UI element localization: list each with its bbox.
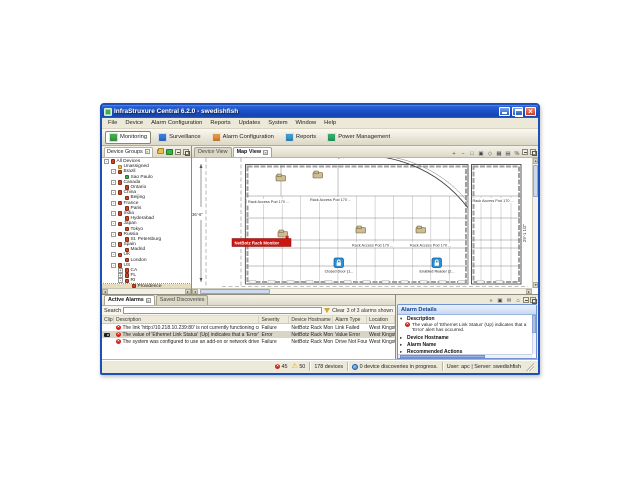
alarm-row[interactable]: The system was configured to use an add-… (102, 338, 395, 345)
panel-minimize-icon[interactable] (523, 297, 529, 303)
door-lock-icon[interactable] (334, 258, 344, 268)
tree-item-label: UK (124, 252, 131, 257)
tree-expander-spacer (118, 258, 123, 263)
alarm-details-title: Alarm Details (401, 307, 437, 313)
tree-expander-icon[interactable]: - (111, 263, 116, 268)
main-row: Device Groups -All DevicesUnassigned-Bra… (102, 146, 538, 294)
section-arrow-icon[interactable]: ▸ (400, 342, 405, 348)
column-header-location[interactable]: Location (367, 316, 395, 323)
power-management-icon (327, 133, 336, 142)
surveillance-icon (158, 133, 167, 142)
alarm-table: The link 'http://10.218.10.239:80' is no… (102, 324, 395, 345)
alarm-row[interactable]: The link 'http://10.218.10.239:80' is no… (102, 324, 395, 331)
group-red-icon (125, 206, 130, 211)
map-panel: Device View Map View +−□▣◇▦▤% (192, 146, 538, 294)
tab-label: Device View (198, 149, 228, 155)
tree-expander-spacer (118, 237, 123, 242)
tree-expander-spacer (118, 227, 123, 232)
zoom-fit-icon[interactable]: □ (468, 149, 476, 157)
power-management-button[interactable]: Power Management (323, 131, 394, 144)
tree-expander-icon[interactable]: - (111, 232, 116, 237)
details-horizontal-scrollbar[interactable] (398, 354, 532, 358)
group-red-icon (118, 170, 123, 175)
dimension-arrow (200, 164, 203, 168)
tree-expander-icon[interactable]: - (111, 211, 116, 216)
door-label: Closed Door (1... (325, 270, 354, 274)
column-header-device-hostname[interactable]: Device Hostname (289, 316, 333, 323)
tab-label: Map View (237, 149, 261, 155)
menu-help[interactable]: Help (320, 120, 340, 126)
tree-expander-icon[interactable]: - (111, 201, 116, 206)
reader-lock-icon[interactable] (432, 258, 442, 268)
alarms-tab-bar: Active Alarms Saved Discoveries (102, 295, 395, 306)
group-red-icon (118, 201, 123, 206)
section-label: Alarm Name (407, 342, 436, 348)
column-header-severity[interactable]: Severity (259, 316, 289, 323)
bottom-row: Active Alarms Saved Discoveries Search C… (102, 294, 538, 359)
camera-clip-icon[interactable] (104, 333, 110, 337)
tree-item-label: Madrid (131, 247, 146, 252)
grid-icon[interactable]: ▦ (495, 149, 503, 157)
layers-icon[interactable]: ▤ (504, 149, 512, 157)
group-red-icon (118, 232, 123, 237)
alarm-configuration-button[interactable]: Alarm Configuration (208, 131, 278, 144)
alarm-search-row: Search Clear 3 of 3 alarms shown (102, 306, 395, 316)
alarm-severity: Failure (259, 324, 289, 331)
tree-expander-icon[interactable]: - (111, 169, 116, 174)
pan-icon[interactable]: ◇ (486, 149, 494, 157)
alarm-hostname: NetBotz Rack Monitor 550 (289, 331, 333, 338)
tree-expander-spacer (118, 206, 123, 211)
menu-reports[interactable]: Reports (206, 120, 234, 126)
panel-maximize-icon[interactable] (530, 297, 536, 303)
zoom-out-icon[interactable]: − (459, 149, 467, 157)
alarm-type: Value Error (333, 331, 367, 338)
group-red-icon (118, 190, 123, 195)
error-icon (116, 325, 121, 330)
active-alarms-panel: Active Alarms Saved Discoveries Search C… (102, 295, 396, 359)
alarm-description: The link 'http://10.218.10.239:80' is no… (122, 325, 259, 331)
rack-label: Rack Access Pod 170 ... (248, 200, 289, 204)
tab-close-icon[interactable] (145, 149, 150, 154)
rack-label: Rack Access Pod 170 ... (410, 244, 451, 248)
device-groups-tab[interactable]: Device Groups (104, 147, 153, 157)
tree-expander-spacer (118, 185, 123, 190)
tree-expander-icon[interactable]: - (111, 190, 116, 195)
clear-link[interactable]: Clear (332, 308, 344, 314)
menu-device[interactable]: Device (121, 120, 147, 126)
scroll-right-icon[interactable]: ► (526, 289, 532, 294)
alarm-description: The system was configured to use an add-… (122, 339, 259, 345)
dimension-label-left: 36'-6" (192, 212, 203, 217)
double-chevron-icon[interactable]: » (487, 296, 495, 304)
panel-maximize-icon[interactable] (530, 149, 536, 155)
close-icon[interactable] (525, 107, 536, 116)
details-section-device-hostname[interactable]: ▸Device Hostname (398, 334, 531, 341)
tab-active-alarms[interactable]: Active Alarms (104, 295, 155, 305)
alarm-type: Link Failed (333, 324, 367, 331)
tree-expander-icon[interactable]: - (111, 252, 116, 257)
group-red-icon (125, 227, 130, 232)
title-bar[interactable]: InfraStruxure Central 6.2.0 - swedishfis… (102, 105, 538, 118)
tab-saved-discoveries[interactable]: Saved Discoveries (156, 295, 209, 305)
group-red-icon (125, 237, 130, 242)
warning-alarms-status[interactable]: ⚠ 50 (292, 363, 306, 370)
discovery-status: 0 device discoveries in progress. (352, 364, 438, 370)
panel-maximize-icon[interactable] (183, 149, 189, 155)
scroll-thumb[interactable] (532, 315, 536, 333)
app-toolbar: MonitoringSurveillanceAlarm Configuratio… (102, 129, 538, 146)
app-icon (104, 108, 112, 116)
tree-expander-icon[interactable]: - (118, 278, 123, 283)
section-arrow-icon[interactable]: ▸ (400, 335, 405, 341)
alarm-details-panel: Alarm Details ▾DescriptionThe value of '… (397, 304, 537, 359)
alarm-location: West Kingston (367, 324, 395, 331)
search-input[interactable] (123, 307, 322, 314)
group-red-icon (125, 273, 130, 278)
toolbar-button-label: Surveillance (169, 134, 201, 140)
discovery-icon (352, 364, 358, 370)
critical-alarms-status[interactable]: 45 (275, 364, 288, 370)
column-header-clip[interactable]: Clip (102, 316, 114, 323)
menu-system[interactable]: System (264, 120, 291, 126)
tab-map-view[interactable]: Map View (233, 147, 272, 157)
critical-icon (275, 364, 280, 369)
app-window: InfraStruxure Central 6.2.0 - swedishfis… (100, 103, 540, 375)
status-bar: 45 ⚠ 50 178 devices 0 device discoveries… (102, 359, 538, 373)
toolbar-button-label: Power Management (338, 134, 390, 140)
scroll-thumb[interactable] (200, 289, 270, 294)
dimension-label-right: 29'-1 1/2" (522, 223, 527, 242)
group-red-icon (118, 263, 123, 268)
group-red-icon (118, 180, 123, 185)
tab-device-view[interactable]: Device View (194, 147, 232, 157)
group-red-icon (118, 211, 123, 216)
map-vertical-scrollbar[interactable]: ▲ ▼ (532, 158, 538, 288)
home-icon[interactable]: ⌂ (514, 296, 522, 304)
tree-expander-icon[interactable]: - (111, 221, 116, 226)
alarm-severity: Error (259, 331, 289, 338)
tree-expander-spacer (118, 195, 123, 200)
map-horizontal-scrollbar[interactable]: ◄ ► (192, 288, 532, 294)
details-vertical-scrollbar[interactable] (532, 315, 536, 354)
show-devices-icon[interactable] (166, 149, 173, 155)
group-green-icon (125, 175, 130, 180)
tree-expander-icon[interactable]: - (111, 180, 116, 185)
section-content: The value of 'Ethernet Link Status' (Up)… (398, 322, 531, 334)
monitoring-icon (109, 133, 118, 142)
group-red-icon (125, 268, 130, 273)
tab-label: Active Alarms (108, 297, 144, 303)
warning-count: 50 (299, 364, 305, 370)
panel-minimize-icon[interactable] (522, 149, 528, 155)
column-header-description[interactable]: Description (114, 316, 259, 323)
critical-count: 45 (282, 364, 288, 370)
add-group-icon[interactable] (157, 149, 165, 154)
group-red-icon (118, 253, 123, 258)
device-groups-header: Device Groups (102, 146, 191, 158)
map-tab-bar: Device View Map View +−□▣◇▦▤% (192, 146, 538, 158)
device-groups-tree: -All DevicesUnassigned-BrazilSao Paulo-C… (102, 158, 191, 288)
scroll-down-icon[interactable]: ▼ (533, 282, 538, 288)
menu-updates[interactable]: Updates (235, 120, 265, 126)
floor-map[interactable]: 36'-6" (192, 158, 538, 294)
tree-expander-spacer (118, 247, 123, 252)
tree-expander-icon[interactable]: - (104, 159, 109, 164)
toolbar-button-label: Reports (296, 134, 316, 140)
scroll-left-icon[interactable]: ◄ (192, 289, 198, 294)
tab-label: Saved Discoveries (160, 297, 205, 303)
section-label: Device Hostname (407, 335, 449, 341)
device-groups-title: Device Groups (107, 149, 143, 155)
discovery-text: 0 device discoveries in progress. (360, 364, 438, 370)
alarm-details-header: Alarm Details (398, 305, 536, 315)
alarm-type: Drive Not Found (333, 338, 367, 345)
alarm-location: West Kingston (367, 338, 395, 345)
tree-expander-icon[interactable]: - (111, 242, 116, 247)
details-toolbar: »▣✉⌂ (396, 295, 538, 304)
error-icon (116, 339, 121, 344)
alarm-details-area: »▣✉⌂ Alarm Details ▾DescriptionThe value… (396, 295, 538, 359)
details-section-alarm-name[interactable]: ▸Alarm Name (398, 341, 531, 348)
monitoring-button[interactable]: Monitoring (105, 131, 151, 144)
group-red-icon (118, 222, 123, 227)
menu-bar: FileDeviceAlarm ConfigurationReportsUpda… (102, 118, 538, 129)
device-groups-panel: Device Groups -All DevicesUnassigned-Bra… (102, 146, 192, 294)
menu-file[interactable]: File (104, 120, 121, 126)
group-red-icon (111, 159, 116, 164)
maximize-icon[interactable] (512, 107, 523, 116)
alarm-details-body: ▾DescriptionThe value of 'Ethernet Link … (398, 315, 536, 358)
tree-item-label: RI (131, 278, 136, 283)
settings-icon[interactable]: % (513, 149, 521, 157)
search-label: Search (104, 308, 121, 314)
reports-icon (285, 133, 294, 142)
error-icon (116, 332, 121, 337)
alarm-configuration-icon (212, 133, 221, 142)
tree-item-label: London (131, 258, 147, 263)
toolbar-button-label: Monitoring (120, 134, 147, 140)
reports-button[interactable]: Reports (281, 131, 320, 144)
tree-expander-spacer (118, 216, 123, 221)
rack-label: Rack Access Pod 170 ... (473, 199, 514, 203)
alarm-count: 3 of 3 alarms shown (347, 308, 393, 314)
desktop: InfraStruxure Central 6.2.0 - swedishfis… (0, 0, 640, 480)
scroll-thumb[interactable] (533, 165, 538, 197)
zoom-in-icon[interactable]: + (450, 149, 458, 157)
tree-expander-spacer (118, 175, 123, 180)
menu-window[interactable]: Window (292, 120, 321, 126)
section-label: Description (407, 316, 435, 322)
rack-label: Rack Access Pod 170 ... (310, 198, 351, 202)
alarm-location: West Kingston (367, 331, 395, 338)
resize-grip[interactable] (525, 362, 534, 371)
group-red-icon (118, 242, 123, 247)
group-red-icon (125, 279, 130, 284)
tab-close-icon[interactable] (263, 150, 268, 155)
section-arrow-icon[interactable]: ▾ (400, 316, 405, 322)
group-red-icon (125, 196, 130, 201)
select-icon[interactable]: ▣ (477, 149, 485, 157)
toolbar-button-label: Alarm Configuration (223, 134, 274, 140)
device-count: 178 devices (314, 364, 343, 370)
menu-alarm-configuration[interactable]: Alarm Configuration (147, 120, 206, 126)
clear-filter-icon[interactable] (324, 308, 330, 313)
map-toolbar: +−□▣◇▦▤% (450, 149, 521, 157)
group-folder-icon (118, 165, 123, 170)
scroll-up-icon[interactable]: ▲ (533, 158, 538, 164)
dimension-arrow (200, 278, 203, 282)
alarm-hostname: NetBotz Rack Monitor 550 (289, 338, 333, 345)
user-server-info: User: apc | Server: swedishfish (447, 364, 521, 370)
reader-label: Enabled Reader (2... (419, 270, 454, 274)
surveillance-button[interactable]: Surveillance (154, 131, 205, 144)
minimize-icon[interactable] (499, 107, 510, 116)
section-text: The value of 'Ethernet Link Status' (Up)… (412, 322, 529, 333)
alarm-table-header: ClipDescriptionSeverityDevice HostnameAl… (102, 316, 395, 324)
floor-plan-svg: 36'-6" (192, 158, 531, 288)
window-title: InfraStruxure Central 6.2.0 - swedishfis… (114, 108, 497, 115)
alarm-row[interactable]: The value of 'Ethernet Link Status' (Up)… (102, 331, 395, 338)
panel-minimize-icon[interactable] (175, 149, 181, 155)
group-red-icon (125, 258, 130, 263)
error-icon (405, 322, 410, 327)
alarm-severity: Failure (259, 338, 289, 345)
mail-icon[interactable]: ✉ (505, 296, 513, 304)
image-icon[interactable]: ▣ (496, 296, 504, 304)
warning-icon: ⚠ (292, 363, 298, 370)
column-header-alarm-type[interactable]: Alarm Type (333, 316, 367, 323)
tree-item-label: US (124, 263, 131, 268)
alarm-badge-label: NetBotz Rack Monitor (235, 241, 280, 246)
tab-close-icon[interactable] (146, 298, 151, 303)
alarm-description: The value of 'Ethernet Link Status' (Up)… (122, 332, 259, 338)
scroll-thumb[interactable] (400, 355, 485, 358)
details-section-description[interactable]: ▾Description (398, 315, 531, 322)
alarm-hostname: NetBotz Rack Monitor 550 (289, 324, 333, 331)
rack-label: Rack Access Pod 170 ... (352, 244, 393, 248)
